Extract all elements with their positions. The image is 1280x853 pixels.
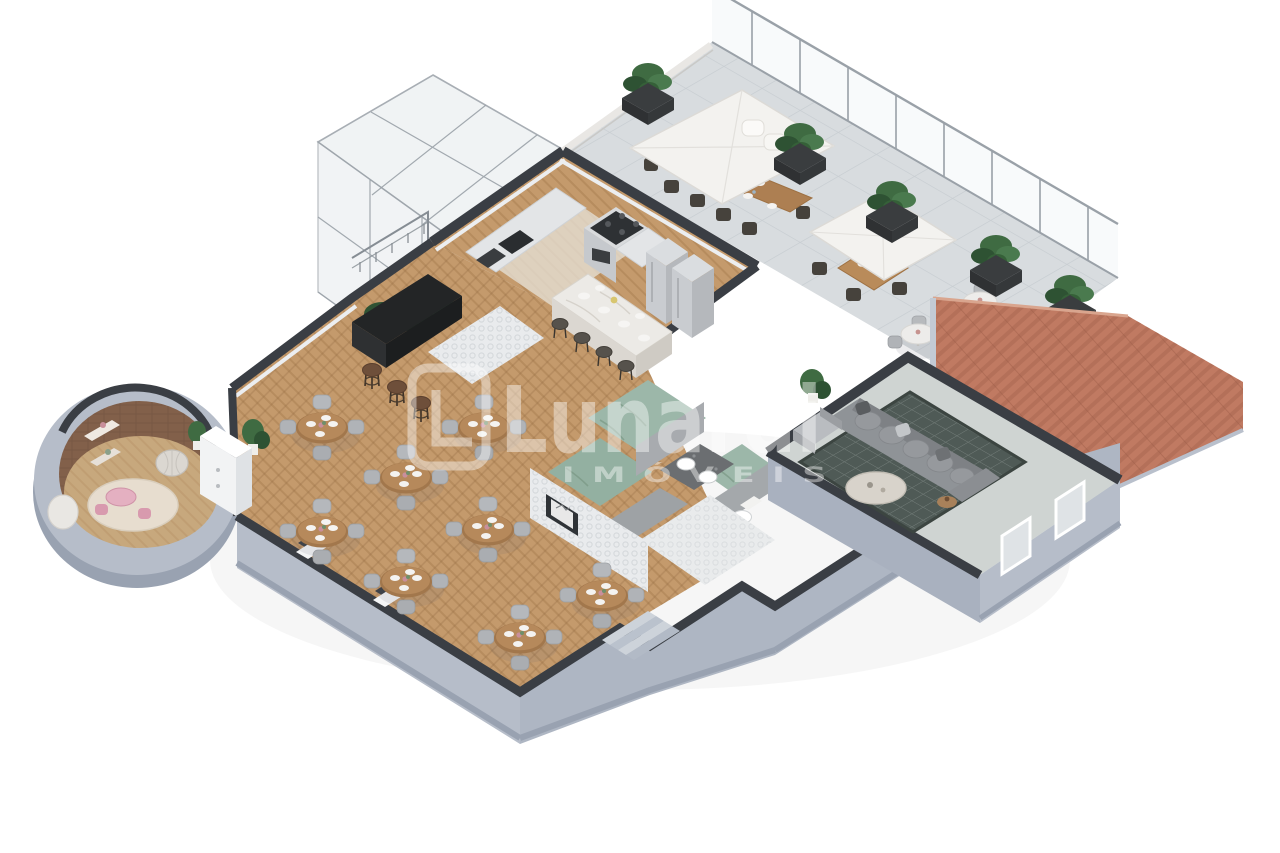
coffee-table	[846, 472, 906, 504]
watermark-registered: ®	[842, 367, 857, 389]
floor-plan-render: Lunardi IMÓVEIS ®	[0, 0, 1280, 853]
isometric-scene: Lunardi IMÓVEIS ®	[0, 0, 1280, 853]
side-table	[937, 496, 957, 508]
watermark-brand: Lunardi	[500, 367, 822, 474]
egg-chair	[48, 495, 78, 529]
fruit-bowl	[611, 297, 618, 304]
watermark-subtitle: IMÓVEIS	[562, 462, 844, 487]
bar-stool-instance	[388, 381, 407, 407]
bar-stool-instance	[363, 364, 382, 390]
